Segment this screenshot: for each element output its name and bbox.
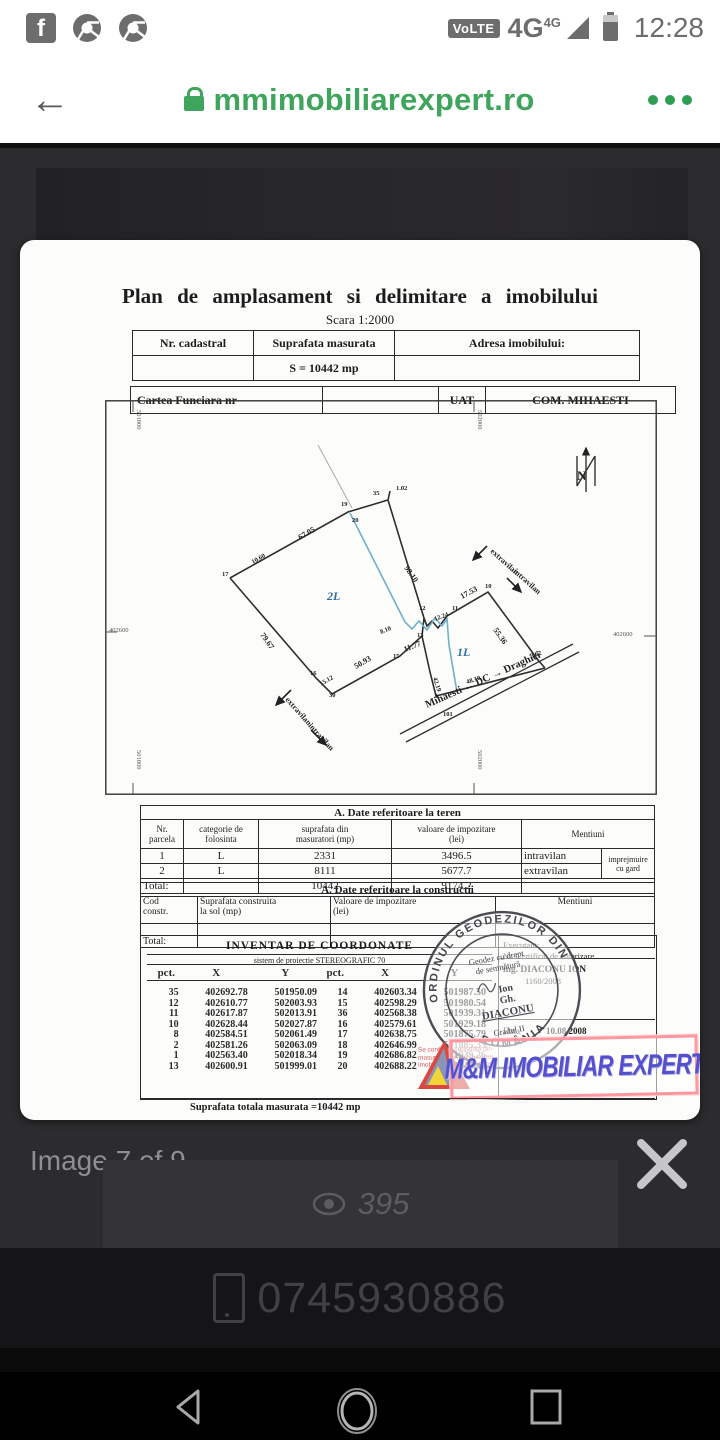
plot-label: 11.77	[402, 639, 422, 654]
android-navigation-bar	[0, 1372, 720, 1440]
plot-label: 8.10	[379, 625, 392, 636]
parcel-outline	[230, 491, 545, 696]
plot-label: 98.10	[402, 564, 420, 584]
image-viewer-overlay: Plan de amplasament si delimitare a imob…	[0, 143, 720, 1372]
plot-label: 10	[485, 583, 492, 590]
plot-label: 501800	[135, 750, 142, 770]
chrome-notification-icon	[118, 13, 148, 43]
network-type: 4G4G	[508, 15, 561, 42]
phone-bar: 0745930886	[0, 1248, 720, 1348]
dimmed-background-photo	[36, 168, 688, 242]
teren-row: 1L 23313496.5 intravilan imprejmuire cu …	[141, 849, 655, 864]
smartphone-icon	[213, 1273, 245, 1323]
plot-label: 101	[443, 711, 453, 718]
plot-label: 55.36	[491, 626, 509, 646]
plot-label: 402600	[613, 631, 633, 638]
plot-label: 30	[329, 692, 336, 699]
signal-strength-icon	[567, 17, 589, 39]
facebook-notification-icon: f	[26, 13, 56, 43]
document-footer: Suprafata totala masurata =10442 mp	[190, 1102, 360, 1113]
chrome-notification-icon	[72, 13, 102, 43]
plot-label: 17	[222, 571, 229, 578]
views-count: 395	[358, 1186, 410, 1222]
teren-table: A. Date referitoare la teren Nr. parcela…	[140, 805, 655, 894]
drawing-frame	[106, 401, 656, 794]
url-bar[interactable]: mmimobiliarexpert.ro	[70, 82, 648, 118]
plot-label: 10.60	[251, 552, 267, 565]
plot-label: 67.05	[297, 525, 317, 542]
guide-line	[318, 445, 352, 508]
https-lock-icon	[184, 96, 204, 111]
url-text: mmimobiliarexpert.ro	[214, 82, 535, 118]
status-clock: 12:28	[634, 12, 704, 44]
header-table: Nr. cadastral Suprafata masurata Adresa …	[132, 330, 640, 381]
phone-number[interactable]: 0745930886	[257, 1274, 506, 1323]
plot-label: 11	[452, 605, 458, 612]
battery-icon	[603, 15, 618, 41]
plot-label: 2L	[326, 589, 340, 603]
plot-label: 16	[310, 670, 317, 677]
intravilan-arrow	[507, 578, 521, 592]
plot-label: intravilan	[512, 567, 544, 597]
cadastral-drawing: 67.0510.601920351.0298.102L79.67171212.2…	[105, 400, 657, 795]
extravilan-arrow	[473, 546, 487, 560]
volte-badge: VoLTE	[448, 19, 500, 38]
plot-label: 79.67	[258, 631, 276, 651]
plot-label: 35	[373, 490, 380, 497]
plot-label: 20	[352, 517, 359, 524]
android-home-button[interactable]	[332, 1386, 382, 1436]
plot-label: 402600	[109, 627, 129, 634]
plot-label: 502000	[476, 750, 483, 770]
plot-label: intravilan	[307, 721, 337, 753]
browser-back-button[interactable]: ←	[0, 80, 70, 120]
plot-label: 502000	[476, 410, 483, 430]
android-back-button[interactable]	[168, 1386, 210, 1428]
browser-menu-button[interactable]	[648, 95, 720, 105]
plot-label: 19	[341, 501, 348, 508]
plot-label: 1L	[457, 645, 470, 659]
plot-label: 1.02	[396, 485, 407, 492]
document-scale: Scara 1:2000	[20, 312, 700, 328]
agency-watermark: M&M IMOBILIAR EXPERT	[449, 1034, 698, 1099]
plot-label: 13	[417, 632, 424, 639]
plot-label: 15.12	[319, 674, 335, 687]
plot-label: 50.93	[353, 654, 373, 671]
browser-toolbar: ← mmimobiliarexpert.ro	[0, 56, 720, 145]
plot-label: 12	[419, 605, 426, 612]
plot-label: N	[577, 468, 587, 483]
eye-icon	[312, 1192, 346, 1216]
teren-row: 2L 81115677.7 extravilan	[141, 864, 655, 879]
status-bar: f VoLTE 4G4G 12:28	[0, 0, 720, 56]
document-title: Plan de amplasament si delimitare a imob…	[20, 284, 700, 309]
android-recents-button[interactable]	[526, 1386, 566, 1428]
plot-label: extravilan	[284, 695, 314, 727]
divider	[0, 1348, 720, 1372]
plot-label: 501800	[135, 410, 142, 430]
divider	[0, 143, 720, 148]
views-panel: 395	[103, 1160, 618, 1248]
plot-label: 15	[393, 653, 400, 660]
cadastral-plan-image[interactable]: Plan de amplasament si delimitare a imob…	[20, 240, 700, 1120]
close-viewer-button[interactable]	[633, 1135, 691, 1193]
